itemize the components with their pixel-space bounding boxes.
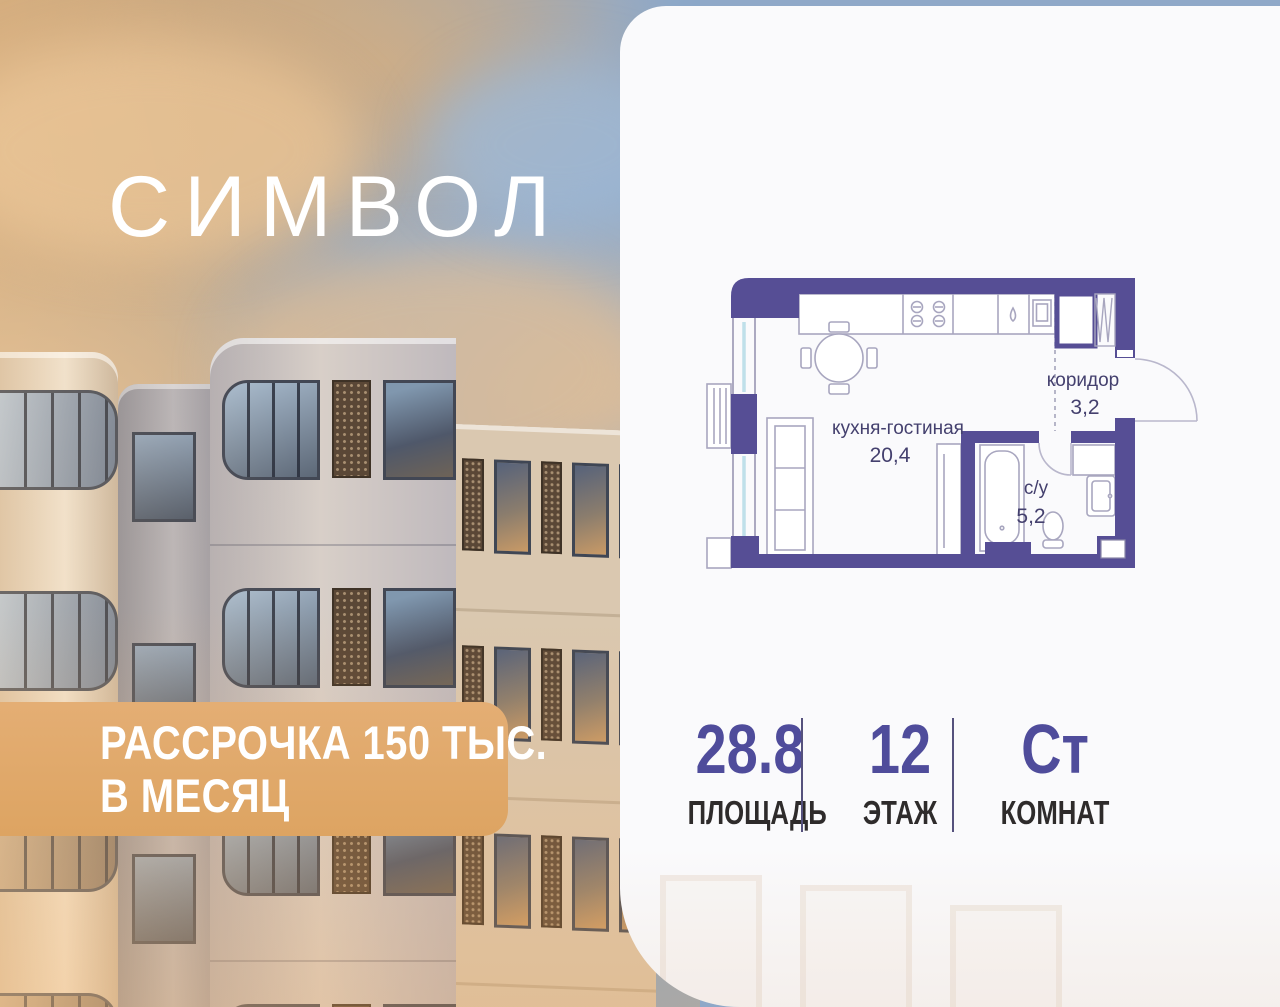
- wall-corner-tl: [731, 278, 799, 318]
- stat-divider: [801, 718, 803, 832]
- facade-window: [132, 432, 196, 522]
- floorplan: кухня-гостиная 20,4 коридор 3,2 с/у 5,2: [703, 266, 1203, 581]
- stat-rooms-label: КОМНАТ: [993, 796, 1118, 829]
- banner-line-2: В МЕСЯЦ: [100, 769, 447, 822]
- facade-window: [494, 833, 531, 928]
- building-floor: [118, 806, 210, 1007]
- radiator: [707, 384, 731, 448]
- building-corner-block: [210, 338, 456, 1007]
- sofa: [767, 418, 813, 558]
- project-logo: СИМВОЛ: [108, 164, 588, 250]
- facade-window: [383, 380, 456, 480]
- room-name-living: кухня-гостиная: [832, 418, 964, 439]
- ornament-panel: [332, 588, 371, 686]
- ornament-panel: [462, 458, 484, 551]
- ornament-panel: [462, 832, 484, 925]
- ghost-window: [660, 875, 762, 1007]
- bay-window: [0, 993, 118, 1007]
- room-name-bathroom: с/у: [1024, 478, 1049, 499]
- listing-screenshot: СИМВОЛ РАССРОЧКА 150 ТЫС. В МЕСЯЦ: [0, 0, 1280, 1007]
- building-floor: [210, 338, 456, 546]
- stat-floor: 12 ЭТАЖ: [820, 714, 980, 829]
- room-area-living: 20,4: [870, 444, 911, 467]
- stat-rooms-value: Ст: [991, 714, 1119, 784]
- facade-window: [572, 649, 609, 744]
- bath-door-arc: [1039, 443, 1071, 475]
- cabinet: [937, 444, 961, 558]
- stat-area: 28.8 ПЛОЩАДЬ: [670, 714, 830, 829]
- building-floor: [210, 962, 456, 1007]
- bay-window: [0, 390, 118, 490]
- bath-cabinet: [1073, 445, 1115, 475]
- stat-area-value: 28.8: [686, 714, 814, 784]
- stat-area-label: ПЛОЩАДЬ: [688, 796, 813, 829]
- washbasin: [1087, 476, 1115, 516]
- facade-window: [132, 854, 196, 944]
- facade-window: [383, 588, 456, 688]
- building-tower-left: [0, 352, 118, 1007]
- building-photo: СИМВОЛ РАССРОЧКА 150 ТЫС. В МЕСЯЦ: [0, 0, 700, 1007]
- facade-window: [572, 836, 609, 931]
- stat-floor-value: 12: [836, 714, 964, 784]
- bay-window: [222, 588, 320, 688]
- banner-line-1: РАССРОЧКА 150 ТЫС.: [100, 716, 447, 769]
- ghost-building-watermark: [620, 817, 1280, 1007]
- door-hinge-notch: [1117, 350, 1133, 357]
- shaft: [1057, 294, 1095, 346]
- room-area-corridor: 3,2: [1070, 396, 1099, 419]
- room-area-bathroom: 5,2: [1016, 505, 1045, 528]
- stat-rooms: Ст КОМНАТ: [975, 714, 1135, 829]
- stat-floor-label: ЭТАЖ: [838, 796, 963, 829]
- toilet: [1043, 512, 1063, 548]
- bay-window: [222, 380, 320, 480]
- facade-pier: [707, 538, 731, 568]
- facade-window: [572, 462, 609, 557]
- wardrobe: [1095, 294, 1115, 346]
- bay-window: [0, 591, 118, 691]
- ornament-panel: [541, 461, 563, 554]
- wall-notch: [1101, 540, 1125, 558]
- facade-window: [494, 459, 531, 554]
- ghost-window: [950, 905, 1062, 1007]
- building-tower-mid: [118, 384, 210, 1007]
- ornament-panel: [332, 380, 371, 478]
- room-name-corridor: коридор: [1047, 370, 1120, 391]
- stat-divider: [952, 718, 954, 832]
- building-floor: [118, 384, 210, 595]
- installment-banner: РАССРОЧКА 150 ТЫС. В МЕСЯЦ: [0, 702, 508, 836]
- ghost-window: [800, 885, 912, 1007]
- entry-door-arc: [1135, 359, 1197, 421]
- building-floor: [0, 955, 118, 1007]
- building-floor: [0, 352, 118, 553]
- ornament-panel: [541, 835, 563, 928]
- bathtub: [980, 445, 1024, 551]
